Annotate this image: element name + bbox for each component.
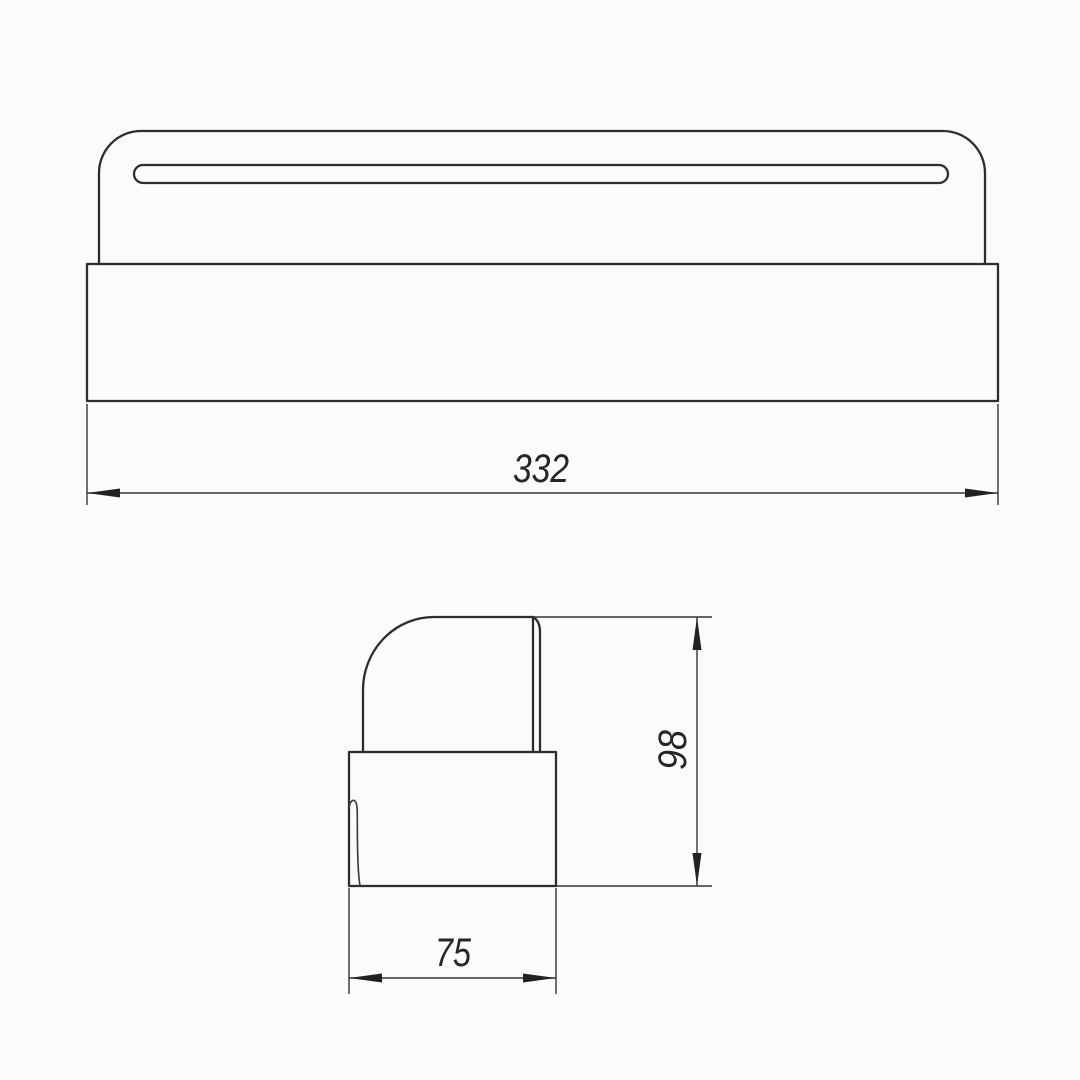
arrowhead-up-icon — [693, 617, 702, 650]
front-view — [87, 131, 998, 401]
side-view-bend-line — [349, 800, 360, 886]
side-view-cap-outline — [363, 617, 533, 752]
arrowhead-left-icon — [349, 974, 382, 983]
drawing-canvas: 332 98 — [0, 0, 1080, 1080]
arrowhead-left-icon — [87, 489, 120, 498]
arrowhead-down-icon — [693, 853, 702, 886]
arrowhead-right-icon — [523, 974, 556, 983]
dimension-side-depth: 75 — [349, 888, 556, 994]
technical-drawing: 332 98 — [0, 0, 1080, 1080]
dimension-value-332: 332 — [513, 447, 569, 491]
side-view-body — [349, 752, 556, 886]
front-view-slot — [134, 165, 948, 183]
dimension-front-width: 332 — [87, 404, 998, 505]
front-view-body — [87, 264, 998, 401]
side-view — [349, 617, 556, 886]
dimension-side-height: 98 — [533, 617, 712, 886]
front-view-plate-outline — [99, 131, 985, 264]
dimension-value-98: 98 — [651, 729, 695, 770]
arrowhead-right-icon — [965, 489, 998, 498]
dimension-value-75: 75 — [435, 931, 472, 975]
